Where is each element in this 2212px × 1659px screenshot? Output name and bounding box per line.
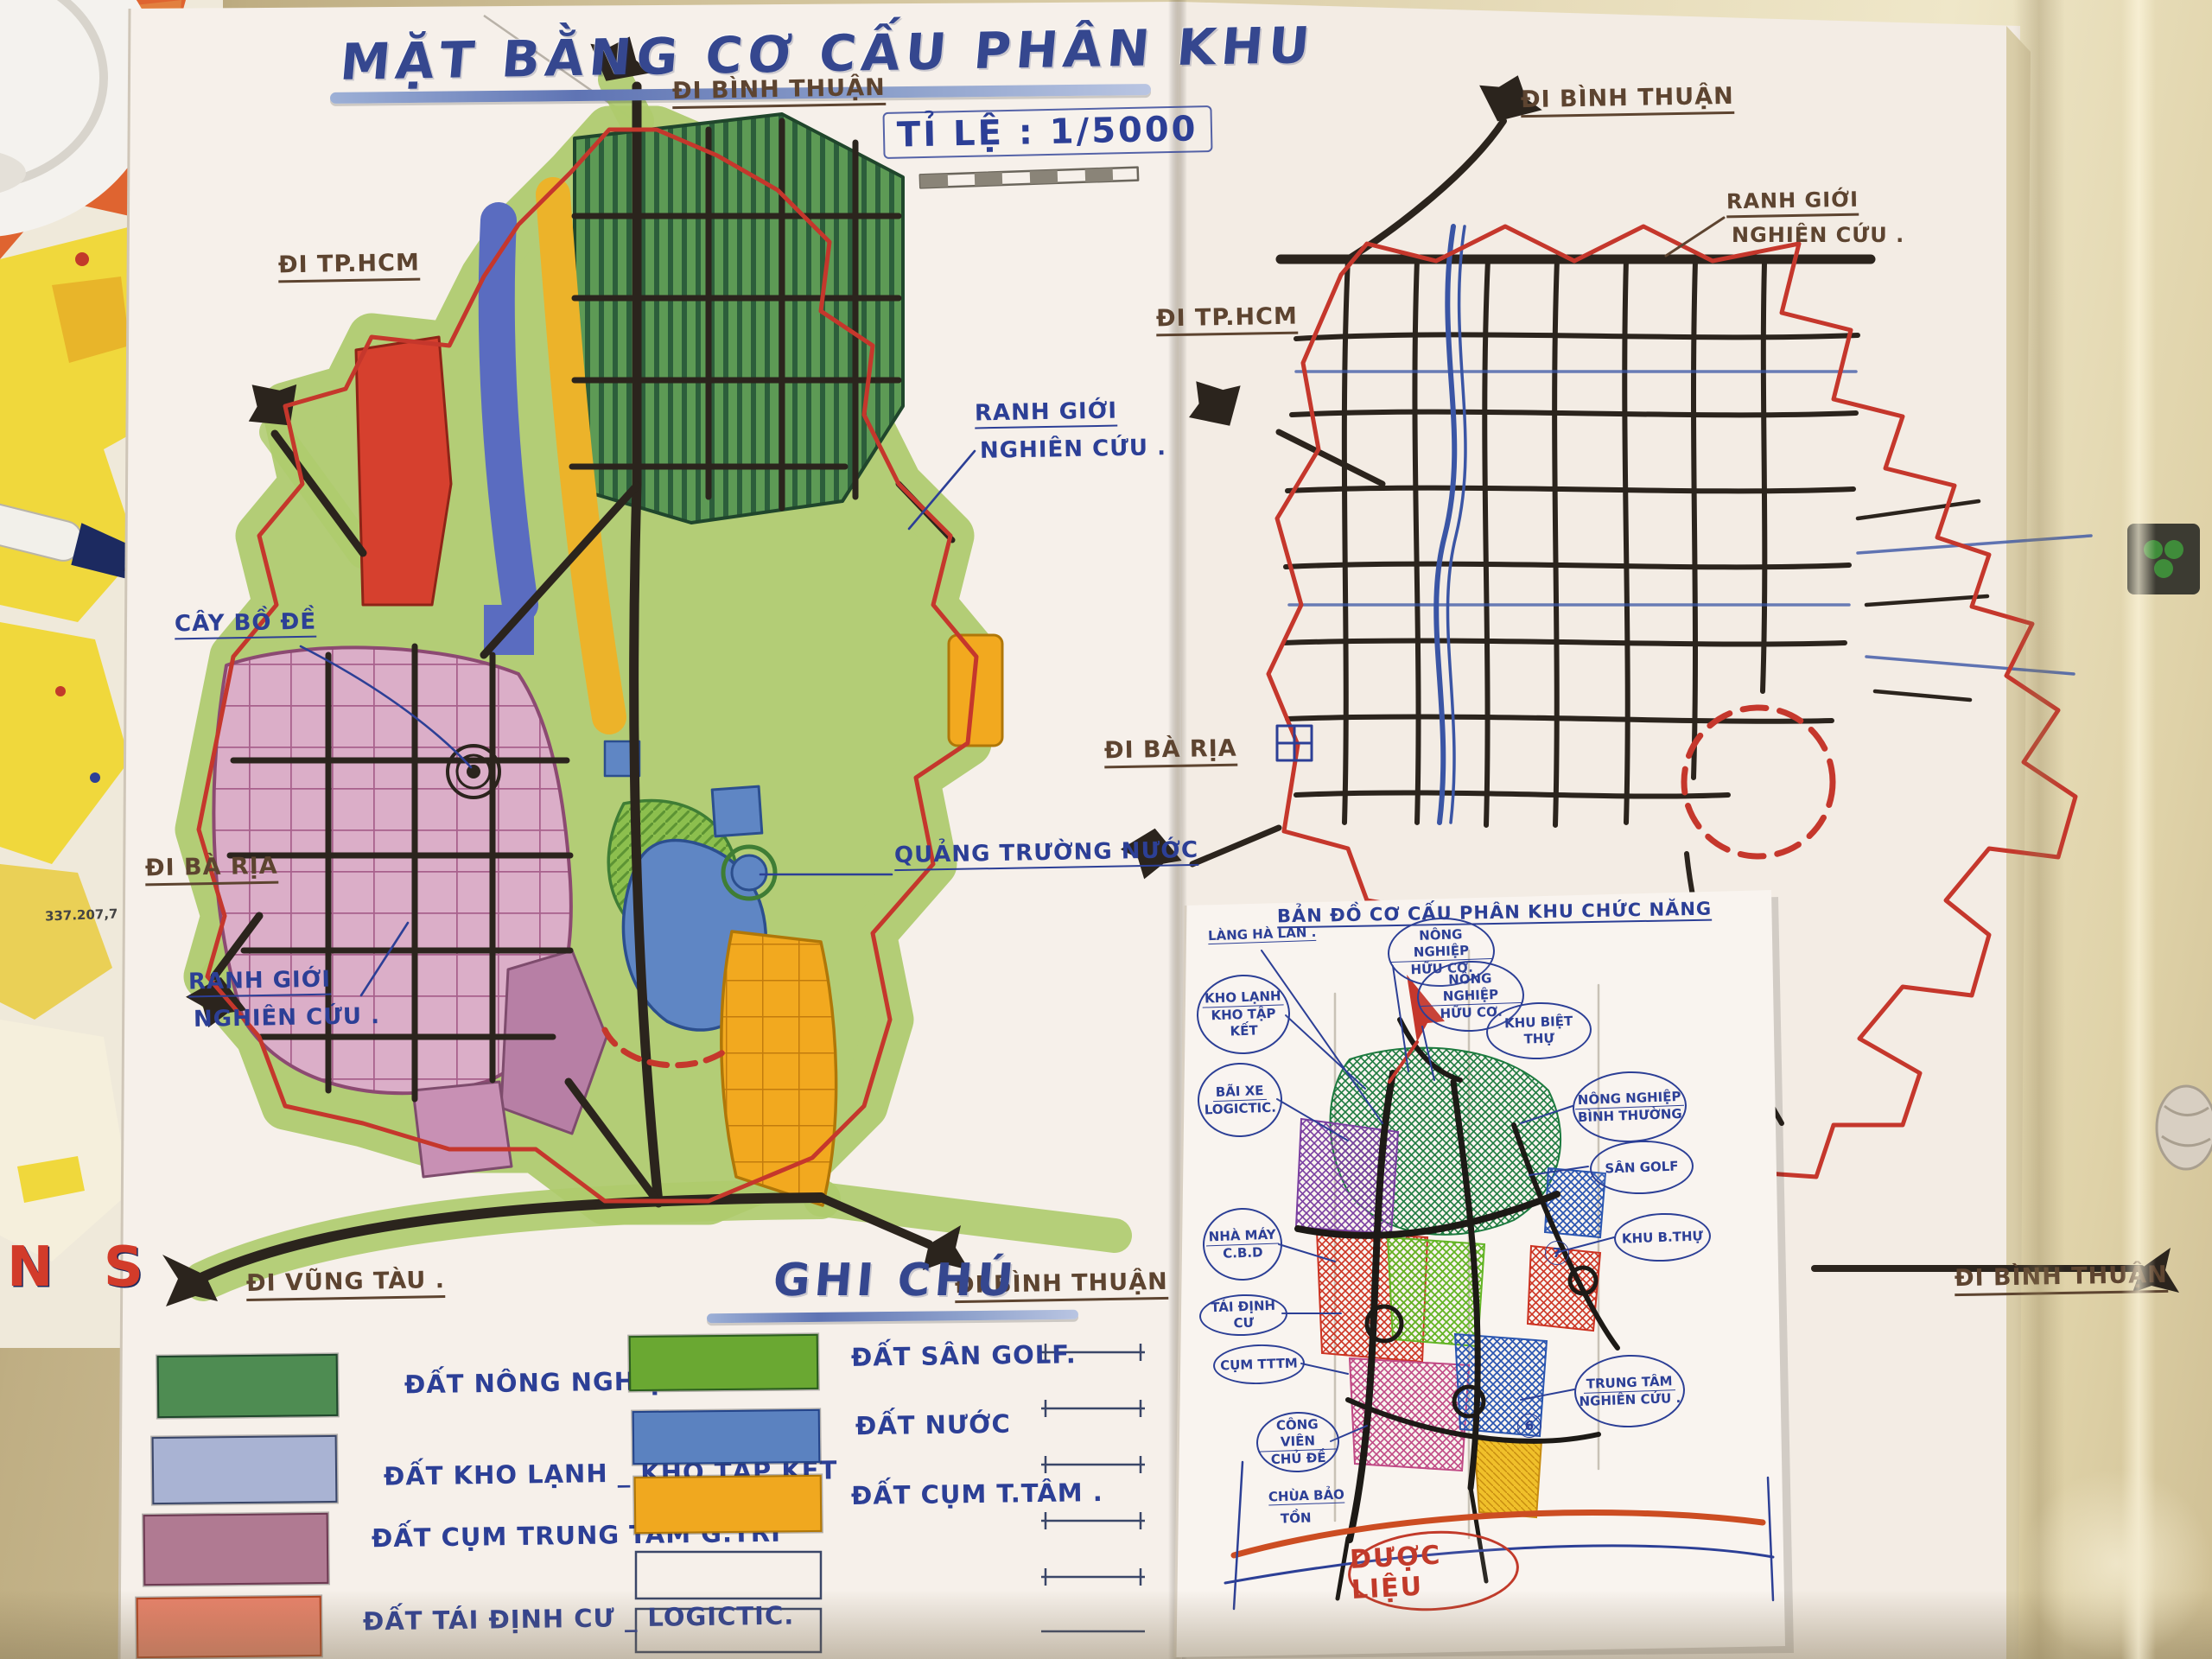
- road-label-tphcm: ĐI TP.HCM: [278, 250, 420, 283]
- annotation-bodhi-tree: CÂY BỒ ĐỀ: [175, 609, 317, 640]
- annotation-boundary-right-1: RANH GIỚI: [975, 398, 1118, 429]
- fabric-highlight: [2121, 0, 2156, 1659]
- inset-badge-7: 7: [1545, 1241, 1569, 1265]
- underlay-number-fragment: 337.207,7: [45, 906, 118, 925]
- legend-title: GHI CHÚ: [771, 1255, 1020, 1306]
- right-annotation-boundary-2: NGHIÊN CỨU .: [1732, 223, 1904, 247]
- khu-biet-thu-label: KHU BIỆT THỰ: [1487, 1013, 1590, 1049]
- legend-label-golf: ĐẤT SÂN GOLF.: [851, 1339, 1077, 1372]
- nha-may-line1: NHÀ MÁY: [1205, 1226, 1279, 1246]
- bai-xe-line2: LOGICTIC.: [1204, 1099, 1276, 1118]
- nn1-line1: NÔNG NGHIỆP: [1389, 925, 1493, 963]
- nn2-line1: NÔNG NGHIỆP: [1418, 969, 1522, 1007]
- annotation-water-square: QUẢNG TRƯỜNG NƯỚC: [894, 837, 1199, 871]
- fabric-corner-highlight: [2022, 1469, 2212, 1659]
- road-label-vung-tau: ĐI VŨNG TÀU .: [246, 1267, 446, 1301]
- khu-b-thu-label: KHU B.THỰ: [1622, 1228, 1704, 1247]
- road-label-ba-ria: ĐI BÀ RỊA: [145, 853, 278, 887]
- right-road-ba-ria: ĐI BÀ RỊA: [1104, 735, 1237, 769]
- legend-swatch-entertainment: [143, 1513, 329, 1586]
- fabric-shadow-bottom: [0, 1590, 2212, 1659]
- legend-label-center: ĐẤT CỤM T.TÂM .: [851, 1478, 1103, 1510]
- annotation-boundary-right-2: NGHIÊN CỨU .: [980, 435, 1166, 464]
- tai-dinh-cu-label: TÁI ĐỊNH CƯ: [1200, 1298, 1286, 1333]
- cong-vien-line1: CÔNG VIÊN: [1257, 1416, 1338, 1452]
- legend-swatch-agriculture: [157, 1354, 339, 1418]
- legend-swatch-water: [632, 1409, 821, 1465]
- legend-label-water: ĐẤT NƯỚC: [855, 1409, 1011, 1441]
- right-annotation-boundary-1: RANH GIỚI: [1726, 188, 1859, 219]
- road-label-binh-thuan-top: ĐI BÌNH THUẬN: [672, 74, 886, 109]
- fabric-fold: [2013, 0, 2065, 1659]
- fabric-dark-corner: [0, 1469, 164, 1659]
- inset-label-chua-2: TỒN: [1281, 1510, 1312, 1526]
- scale-label: TỈ LỆ : 1/5000: [882, 105, 1212, 159]
- zone-red: [356, 337, 451, 605]
- inset-badge-6: 6: [1517, 1414, 1541, 1438]
- nha-may-line2: C.B.D: [1223, 1244, 1263, 1262]
- nn-bt-line2: BÌNH THƯỜNG: [1578, 1105, 1682, 1125]
- zone-orange: [721, 931, 836, 1205]
- cum-tttm-label: CỤM TTTM: [1220, 1355, 1298, 1374]
- kho-lanh-line2: KHO TẬP KẾT: [1198, 1005, 1289, 1040]
- right-road-binh-thuan-top: ĐI BÌNH THUẬN: [1521, 83, 1734, 118]
- bai-xe-line1: BÃI XE: [1213, 1083, 1267, 1102]
- annotation-boundary-left-2: NGHIÊN CỨU .: [194, 1003, 380, 1033]
- legend-swatch-golf: [629, 1334, 819, 1391]
- water-square: [712, 786, 762, 836]
- right-road-tphcm: ĐI TP.HCM: [1156, 303, 1298, 337]
- san-golf-label: SÂN GOLF: [1605, 1158, 1679, 1177]
- annotation-boundary-left-1: RANH GIỚI: [188, 967, 332, 998]
- legend-swatch-center: [634, 1475, 823, 1534]
- underlay-letters-fragment: N S: [7, 1236, 159, 1300]
- photo-of-urban-planning-sketches: { "palette": { "paper": "#f6f0ea", "ink_…: [0, 0, 2212, 1659]
- trung-tam-line2: NGHIÊN CỨU .: [1579, 1389, 1681, 1409]
- inset-label-chua-1: CHÙA BẢO: [1268, 1486, 1345, 1505]
- legend-swatch-cold-storage: [152, 1435, 338, 1504]
- cong-vien-line2: CHỦ ĐỀ: [1270, 1450, 1325, 1468]
